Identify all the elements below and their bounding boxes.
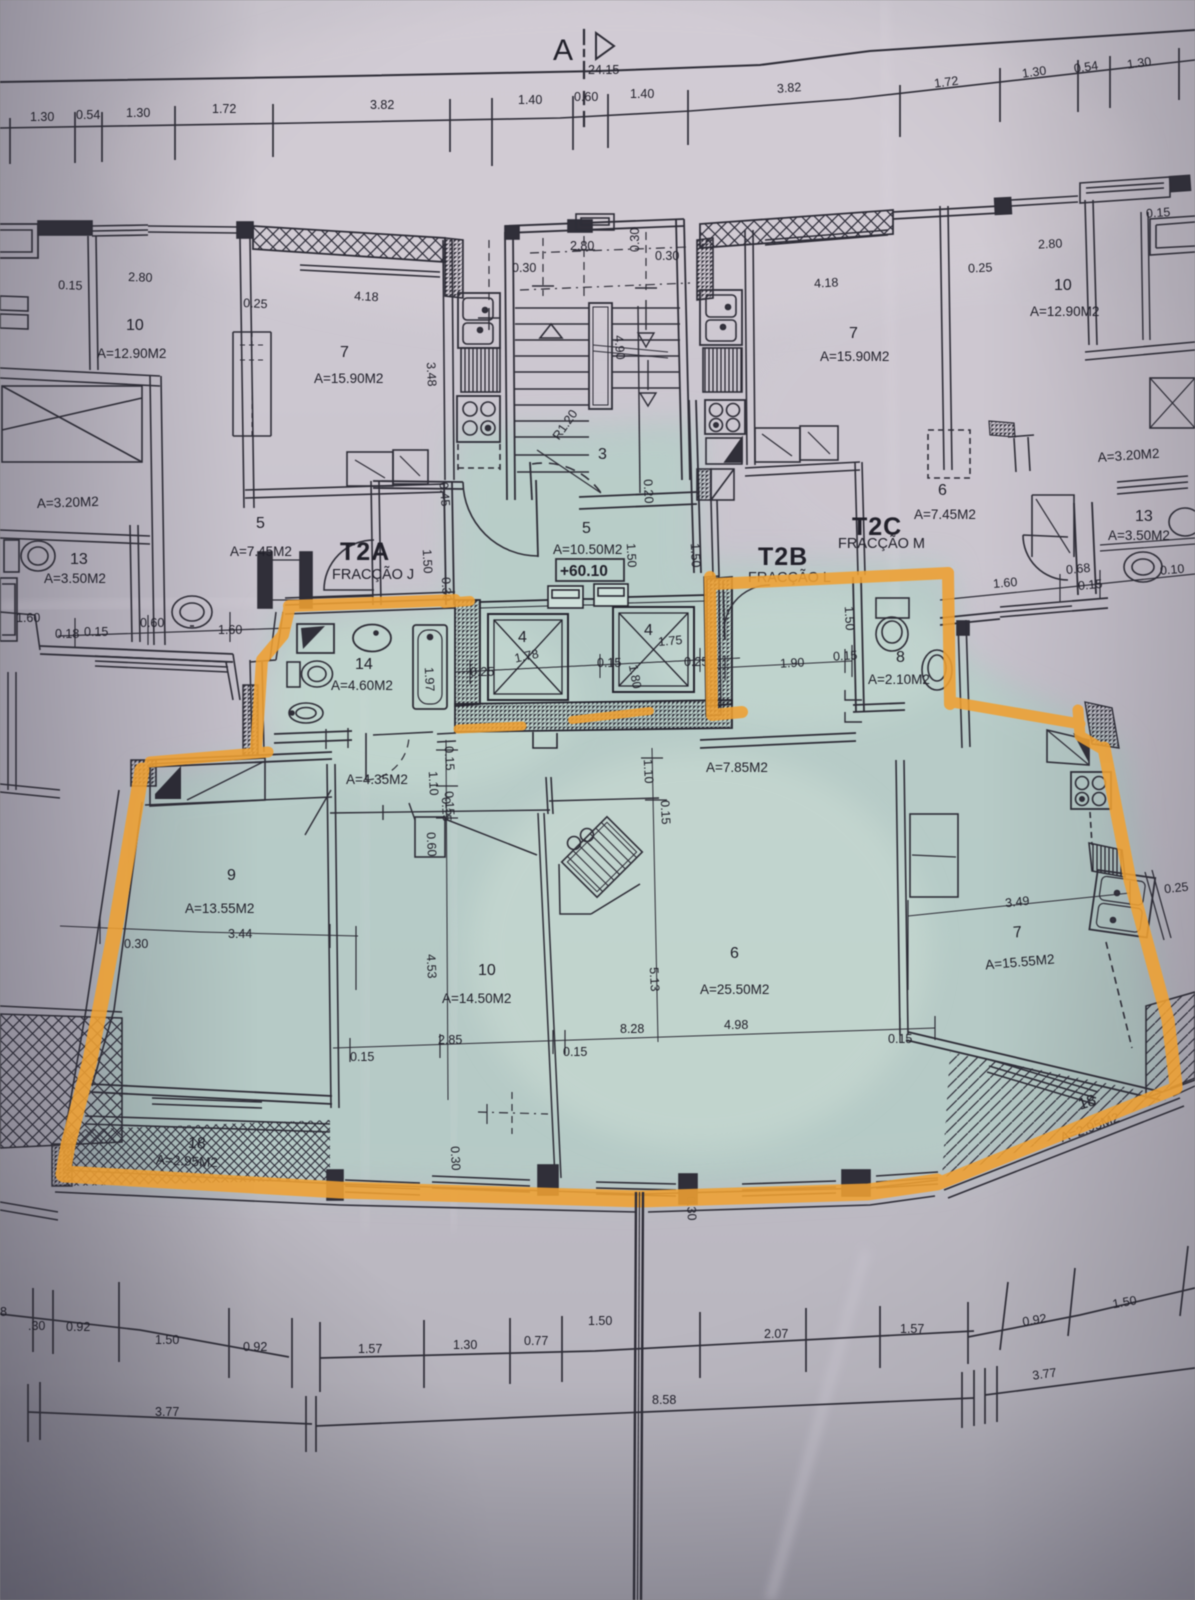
svg-text:0.68: 0.68 [1065,561,1091,577]
svg-text:0.15: 0.15 [597,656,621,670]
svg-text:A=3.20M2: A=3.20M2 [37,494,99,511]
svg-text:3.82: 3.82 [370,98,394,112]
svg-text:A=2.10M2: A=2.10M2 [868,672,930,687]
svg-text:.30: .30 [28,1319,45,1333]
svg-text:1.75: 1.75 [658,633,684,649]
svg-text:2.80: 2.80 [570,239,594,253]
svg-text:1.30: 1.30 [126,106,150,120]
svg-text:T2B: T2B [758,543,808,571]
svg-text:0.30: 0.30 [628,228,642,252]
svg-text:0.25: 0.25 [1163,880,1189,896]
svg-text:0.15: 0.15 [58,278,83,293]
svg-text:2.85: 2.85 [438,1033,462,1047]
svg-text:8: 8 [896,649,905,666]
svg-text:1.40: 1.40 [630,87,654,101]
svg-text:1.97: 1.97 [422,667,437,692]
svg-text:1.57: 1.57 [358,1342,382,1356]
svg-text:0.15: 0.15 [658,800,673,825]
svg-text:1.90: 1.90 [780,655,805,670]
svg-text:0.54: 0.54 [76,108,100,122]
svg-text:A=7.45M2: A=7.45M2 [230,544,292,559]
svg-text:4.90: 4.90 [612,335,628,361]
svg-text:10: 10 [1054,277,1072,294]
svg-text:24.15: 24.15 [588,63,619,77]
svg-text:6: 6 [730,945,739,962]
svg-text:A: A [553,34,573,67]
svg-text:0.30: 0.30 [655,249,679,263]
svg-text:0.92: 0.92 [243,1340,267,1354]
svg-text:0.15: 0.15 [442,746,457,771]
svg-text:5: 5 [582,520,591,537]
svg-text:3.77: 3.77 [155,1405,179,1419]
svg-text:5.13: 5.13 [647,967,662,992]
svg-text:1.50: 1.50 [588,1314,612,1328]
svg-text:0.15: 0.15 [442,791,457,816]
svg-text:0.15: 0.15 [1077,577,1103,593]
svg-text:0.30: 0.30 [124,937,148,951]
svg-text:4: 4 [644,622,653,639]
svg-text:18: 18 [187,1135,206,1153]
svg-text:A=12.90M2: A=12.90M2 [97,346,166,361]
svg-text:A=15.90M2: A=15.90M2 [820,349,889,364]
svg-text:3.82: 3.82 [776,80,801,96]
svg-text:A=4.35M2: A=4.35M2 [346,772,408,787]
svg-text:3.44: 3.44 [228,927,252,941]
svg-text:A=12.90M2: A=12.90M2 [1030,304,1099,319]
svg-text:6: 6 [938,482,947,499]
svg-text:T2A: T2A [340,538,390,566]
svg-text:1.72: 1.72 [933,74,959,91]
svg-text:FRACÇÃO J: FRACÇÃO J [332,566,414,583]
svg-text:2.80: 2.80 [128,270,153,285]
svg-text:A=14.50M2: A=14.50M2 [442,991,511,1006]
svg-text:4.53: 4.53 [424,954,439,979]
svg-text:1.40: 1.40 [518,93,542,107]
svg-text:A=25.50M2: A=25.50M2 [700,982,769,997]
svg-text:7: 7 [1012,924,1022,942]
svg-text:FRACÇÃO M: FRACÇÃO M [838,535,925,552]
svg-text:3.48: 3.48 [424,362,439,387]
svg-text:0.77: 0.77 [524,1334,548,1348]
svg-text:0.15: 0.15 [350,1050,374,1064]
svg-text:5: 5 [256,515,265,532]
svg-text:10: 10 [126,317,144,334]
svg-text:A=7.85M2: A=7.85M2 [706,760,768,775]
svg-text:1.72: 1.72 [212,102,236,116]
svg-text:13: 13 [70,551,88,568]
svg-text:4.98: 4.98 [724,1018,748,1032]
svg-text:1.50: 1.50 [842,606,857,631]
svg-text:14: 14 [355,656,373,673]
svg-text:7: 7 [340,344,349,361]
svg-text:A=10.50M2: A=10.50M2 [553,542,622,557]
svg-text:1.50: 1.50 [420,549,435,574]
svg-text:1.50: 1.50 [155,1333,179,1347]
svg-text:0.15: 0.15 [833,648,858,663]
svg-text:8: 8 [0,1305,7,1319]
svg-text:A=13.55M2: A=13.55M2 [185,901,254,916]
svg-text:4.18: 4.18 [354,289,379,304]
svg-text:1.10: 1.10 [426,771,441,796]
svg-text:A=15.90M2: A=15.90M2 [314,371,383,386]
svg-text:1.50: 1.50 [688,543,703,568]
svg-text:0.25: 0.25 [243,296,268,311]
svg-text:0.60: 0.60 [574,90,598,104]
svg-text:1.60: 1.60 [218,623,242,637]
svg-text:0.92: 0.92 [66,1320,90,1334]
svg-text:0.60: 0.60 [424,832,439,857]
svg-text:0.15: 0.15 [1146,205,1171,221]
svg-text:0.15: 0.15 [84,625,108,639]
svg-text:0.18: 0.18 [55,627,79,641]
svg-text:0.25: 0.25 [684,655,708,669]
svg-text:4: 4 [518,629,527,646]
svg-text:A=7.45M2: A=7.45M2 [914,507,976,522]
svg-text:13: 13 [1135,508,1153,525]
svg-text:8.28: 8.28 [620,1022,644,1036]
svg-text:A=3.50M2: A=3.50M2 [44,571,106,586]
svg-text:0.20: 0.20 [641,479,656,504]
svg-text:1.60: 1.60 [16,611,40,625]
svg-text:0.30: 0.30 [448,1146,463,1171]
svg-text:+60.10: +60.10 [560,563,608,580]
svg-text:1.57: 1.57 [900,1322,924,1336]
svg-text:3: 3 [598,446,607,463]
svg-text:9: 9 [227,867,236,884]
svg-text:4.18: 4.18 [814,275,839,290]
svg-text:1.60: 1.60 [992,575,1018,591]
svg-text:0.30: 0.30 [512,261,536,275]
svg-text:3.49: 3.49 [1004,894,1030,910]
svg-text:1.50: 1.50 [624,543,639,568]
svg-text:0.25: 0.25 [470,665,494,679]
svg-text:0.15: 0.15 [888,1032,912,1046]
svg-text:A=3.50M2: A=3.50M2 [1108,528,1170,543]
svg-text:7: 7 [849,325,858,342]
svg-text:2.07: 2.07 [764,1327,788,1341]
svg-text:A=4.60M2: A=4.60M2 [331,678,393,693]
svg-text:8.58: 8.58 [652,1393,676,1407]
svg-text:1.30: 1.30 [30,110,54,124]
svg-text:2.80: 2.80 [1038,236,1063,251]
svg-text:0.60: 0.60 [140,616,164,630]
svg-text:10: 10 [478,962,496,979]
svg-text:0.25: 0.25 [968,260,993,275]
svg-text:1.10: 1.10 [641,759,656,784]
svg-text:0.15: 0.15 [563,1045,587,1059]
svg-text:1.30: 1.30 [453,1338,477,1352]
svg-text:0.10: 0.10 [1159,562,1185,578]
